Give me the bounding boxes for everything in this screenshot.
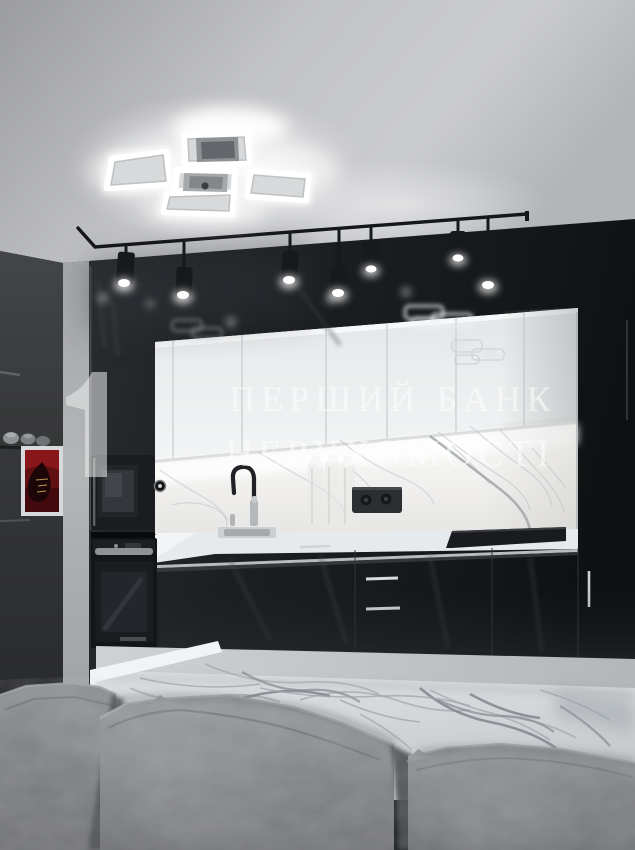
svg-text:ПЕРШИЙ БАНК: ПЕРШИЙ БАНК <box>229 379 557 419</box>
svg-text:НЕРУХОМОСТІ: НЕРУХОМОСТІ <box>226 433 555 475</box>
